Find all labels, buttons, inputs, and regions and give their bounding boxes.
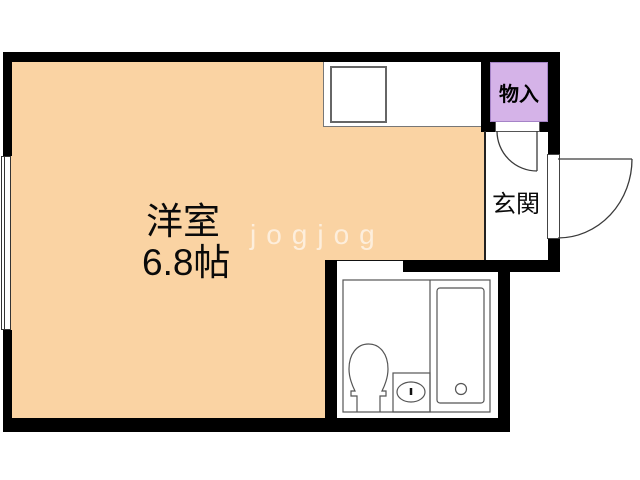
closet-door-swing-icon <box>497 131 537 171</box>
bathroom-inner-outline <box>343 280 490 412</box>
floor-plan: 物入 洋室 6.8帖 玄関 jogjog <box>0 0 640 480</box>
wall-left-lower <box>3 330 12 432</box>
bathroom-unit <box>343 280 490 412</box>
entrance-label: 玄関 <box>492 184 540 219</box>
washbasin-bowl-icon <box>397 382 425 402</box>
washbasin-counter <box>393 373 430 412</box>
wall-top <box>3 52 560 62</box>
wall-bath-left <box>325 260 337 418</box>
wall-bath-right <box>498 272 510 422</box>
storage-closet: 物入 <box>490 62 548 122</box>
kitchen-sink-icon <box>330 66 387 123</box>
wall-bottom <box>3 418 510 432</box>
wall-left-upper <box>3 52 12 156</box>
bathtub-drain-icon <box>456 384 467 395</box>
wall-right-upper <box>548 52 560 155</box>
bathroom-door-opening <box>337 260 403 272</box>
main-room-name: 洋室 <box>142 201 230 242</box>
storage-label: 物入 <box>499 78 539 107</box>
closet-door-opening <box>495 121 540 132</box>
main-room-label: 洋室 6.8帖 <box>142 201 230 284</box>
main-room-size: 6.8帖 <box>142 242 230 283</box>
bathtub-icon <box>437 288 484 403</box>
wall-closet-jamb-right <box>540 122 548 132</box>
window-pane-line <box>4 157 5 329</box>
toilet-icon <box>349 344 388 412</box>
entrance-door-swing-icon <box>558 159 632 238</box>
room-genkan-boundary-line <box>484 131 486 260</box>
window-icon <box>1 156 11 330</box>
watermark-text: jogjog <box>250 219 385 251</box>
entrance-door-opening <box>547 154 560 239</box>
